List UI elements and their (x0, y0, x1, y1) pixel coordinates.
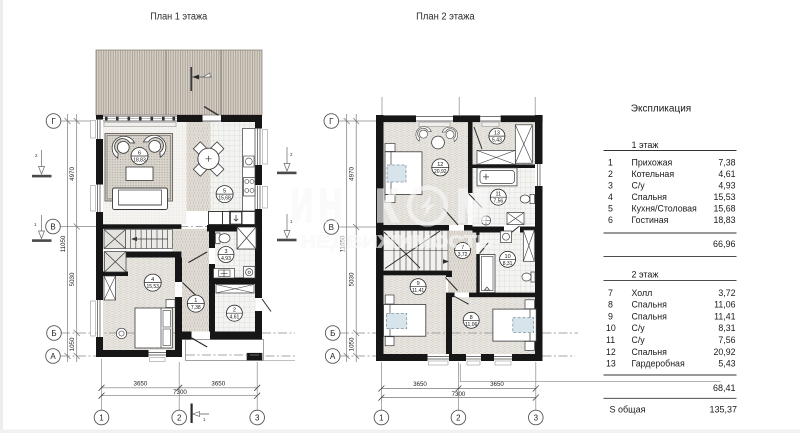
svg-text:С/у: С/у (632, 180, 646, 190)
svg-text:4,93: 4,93 (718, 180, 735, 190)
svg-text:Кухня/Столовая: Кухня/Столовая (632, 203, 698, 213)
svg-text:Гостиная: Гостиная (632, 215, 669, 225)
svg-text:5: 5 (223, 189, 226, 195)
svg-text:10: 10 (606, 323, 616, 333)
svg-text:3650: 3650 (211, 380, 225, 387)
svg-text:3: 3 (534, 414, 539, 423)
svg-text:S общая: S общая (610, 405, 646, 415)
svg-text:А: А (330, 352, 336, 361)
svg-text:4: 4 (608, 192, 613, 202)
svg-text:С/у: С/у (632, 335, 646, 345)
svg-text:7,56: 7,56 (718, 335, 735, 345)
svg-text:3,72: 3,72 (718, 288, 735, 298)
svg-text:18,83: 18,83 (713, 215, 735, 225)
svg-text:7: 7 (608, 288, 613, 298)
svg-text:4,93: 4,93 (221, 256, 231, 262)
svg-text:1: 1 (99, 414, 104, 423)
svg-text:Гардеробная: Гардеробная (632, 359, 685, 369)
svg-text:1: 1 (608, 157, 613, 167)
svg-text:А: А (50, 352, 56, 361)
svg-text:7,38: 7,38 (718, 157, 735, 167)
svg-text:К: К (376, 180, 399, 232)
svg-text:13: 13 (606, 359, 616, 369)
svg-text:11,06: 11,06 (714, 300, 735, 310)
svg-text:2: 2 (290, 152, 293, 157)
svg-text:8,31: 8,31 (718, 323, 735, 333)
svg-text:Спальня: Спальня (632, 192, 668, 202)
svg-text:8: 8 (608, 300, 613, 310)
svg-text:План 1 этажа: План 1 этажа (150, 12, 207, 23)
svg-text:Н: Н (319, 181, 342, 232)
svg-text:3650: 3650 (134, 380, 148, 387)
svg-text:15,53: 15,53 (146, 284, 159, 290)
svg-text:11,41: 11,41 (714, 311, 735, 321)
svg-text:66,96: 66,96 (713, 239, 736, 249)
svg-text:4970: 4970 (69, 167, 76, 181)
svg-text:1: 1 (194, 298, 197, 304)
svg-text:Б: Б (51, 329, 56, 338)
svg-text:12: 12 (437, 162, 443, 168)
svg-text:15,53: 15,53 (713, 192, 735, 202)
svg-text:4,61: 4,61 (230, 315, 240, 321)
svg-text:4: 4 (151, 277, 154, 283)
svg-text:3650: 3650 (490, 381, 504, 388)
svg-text:Экспликация: Экспликация (631, 104, 691, 115)
svg-text:С/у: С/у (632, 323, 646, 333)
svg-text:20,92: 20,92 (713, 347, 735, 357)
svg-text:1: 1 (379, 414, 384, 423)
svg-text:Спальня: Спальня (632, 347, 668, 357)
svg-text:12: 12 (606, 347, 616, 357)
svg-text:5030: 5030 (349, 272, 356, 286)
svg-text:НЕДВИЖИМОСТЬ: НЕДВИЖИМОСТЬ (301, 232, 493, 252)
svg-text:2 этаж: 2 этаж (632, 270, 659, 280)
svg-text:Спальня: Спальня (632, 300, 668, 310)
svg-text:М: М (457, 180, 488, 231)
svg-text:8,31: 8,31 (503, 261, 513, 267)
svg-text:Холл: Холл (632, 288, 653, 298)
svg-text:3,72: 3,72 (458, 252, 468, 258)
svg-text:3: 3 (224, 249, 227, 255)
svg-text:6: 6 (138, 151, 141, 157)
svg-text:11: 11 (495, 192, 501, 198)
svg-text:Б: Б (330, 329, 335, 338)
svg-text:9: 9 (417, 281, 420, 287)
svg-text:4,61: 4,61 (718, 169, 735, 179)
svg-text:1: 1 (203, 417, 206, 422)
svg-text:7,56: 7,56 (493, 199, 503, 205)
svg-text:5,43: 5,43 (492, 138, 502, 144)
svg-text:3: 3 (608, 180, 613, 190)
svg-text:Г: Г (329, 117, 334, 126)
svg-text:5030: 5030 (69, 272, 76, 286)
svg-text:15,68: 15,68 (713, 203, 735, 213)
svg-text:11050: 11050 (60, 235, 67, 252)
svg-text:5,43: 5,43 (718, 359, 735, 369)
svg-text:2: 2 (35, 153, 38, 158)
svg-text:18,83: 18,83 (133, 158, 146, 164)
svg-text:План 2 этажа: План 2 этажа (416, 12, 475, 23)
svg-text:И: И (291, 181, 313, 232)
svg-text:9: 9 (608, 311, 613, 321)
svg-text:7,38: 7,38 (191, 305, 201, 311)
svg-text:2: 2 (233, 308, 236, 314)
svg-text:7300: 7300 (173, 389, 187, 396)
svg-text:1: 1 (34, 222, 37, 227)
svg-text:20,92: 20,92 (434, 169, 447, 175)
svg-text:В: В (50, 223, 55, 232)
svg-text:13: 13 (494, 131, 500, 137)
svg-text:2: 2 (177, 414, 182, 423)
svg-text:3650: 3650 (413, 381, 427, 388)
svg-text:1050: 1050 (69, 337, 76, 351)
svg-text:1 этаж: 1 этаж (632, 140, 659, 150)
svg-text:Прихожая: Прихожая (632, 157, 673, 167)
svg-text:135,37: 135,37 (709, 405, 737, 415)
svg-text:4970: 4970 (349, 167, 356, 181)
svg-text:Г: Г (51, 117, 56, 126)
svg-text:68,41: 68,41 (713, 383, 736, 393)
svg-text:10: 10 (505, 254, 511, 260)
svg-text:1050: 1050 (349, 337, 356, 351)
svg-text:Спальня: Спальня (632, 311, 668, 321)
svg-text:2: 2 (456, 414, 461, 423)
svg-text:7300: 7300 (452, 391, 466, 398)
svg-text:15,68: 15,68 (218, 196, 231, 202)
svg-text:6: 6 (608, 215, 613, 225)
svg-text:11: 11 (606, 335, 615, 345)
svg-text:5: 5 (608, 203, 613, 213)
svg-text:11,41: 11,41 (412, 288, 424, 294)
svg-text:11,06: 11,06 (465, 322, 477, 328)
svg-text:3: 3 (255, 414, 260, 423)
svg-text:Котельная: Котельная (632, 169, 675, 179)
svg-text:8: 8 (470, 315, 473, 321)
svg-text:2: 2 (608, 169, 613, 179)
